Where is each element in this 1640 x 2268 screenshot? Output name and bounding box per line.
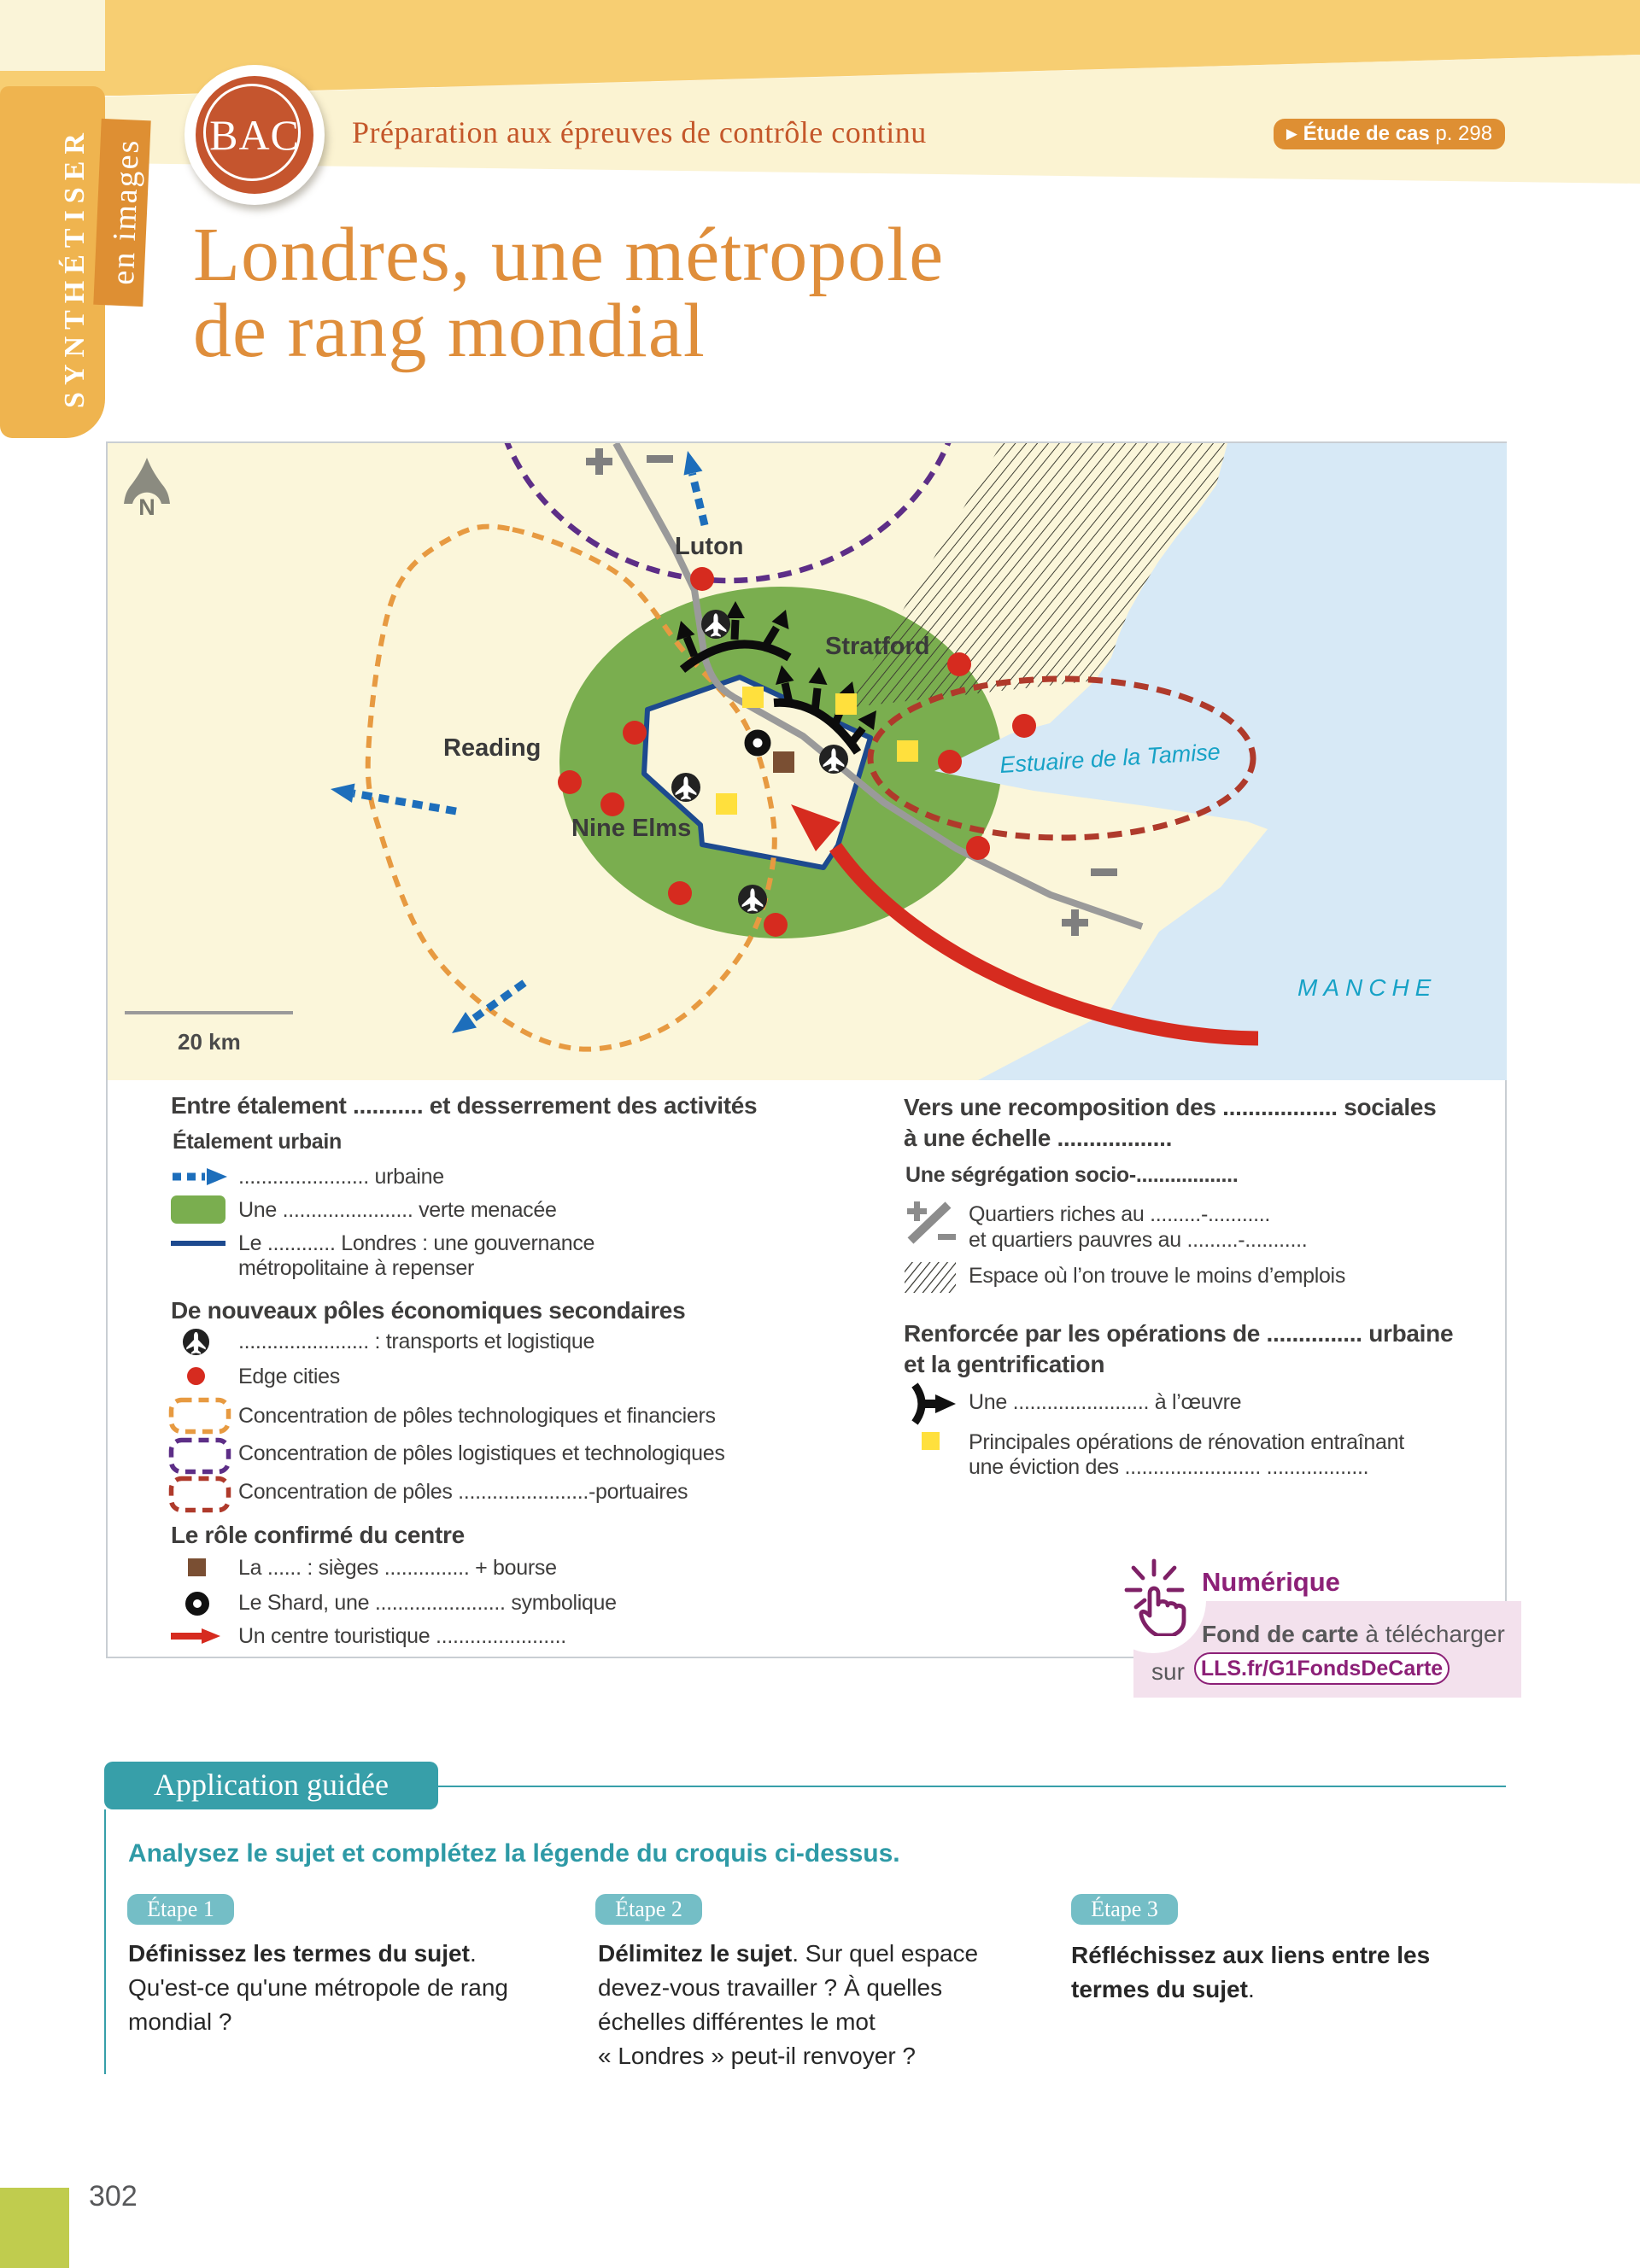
svg-text:20 km: 20 km — [178, 1029, 241, 1055]
svg-text:Nine Elms: Nine Elms — [571, 815, 691, 842]
svg-text:Luton: Luton — [675, 533, 744, 560]
svg-text:Stratford: Stratford — [825, 633, 929, 660]
svg-text:Reading: Reading — [443, 734, 541, 762]
svg-text:N: N — [138, 494, 155, 520]
svg-text:MANCHE: MANCHE — [1297, 974, 1437, 1001]
